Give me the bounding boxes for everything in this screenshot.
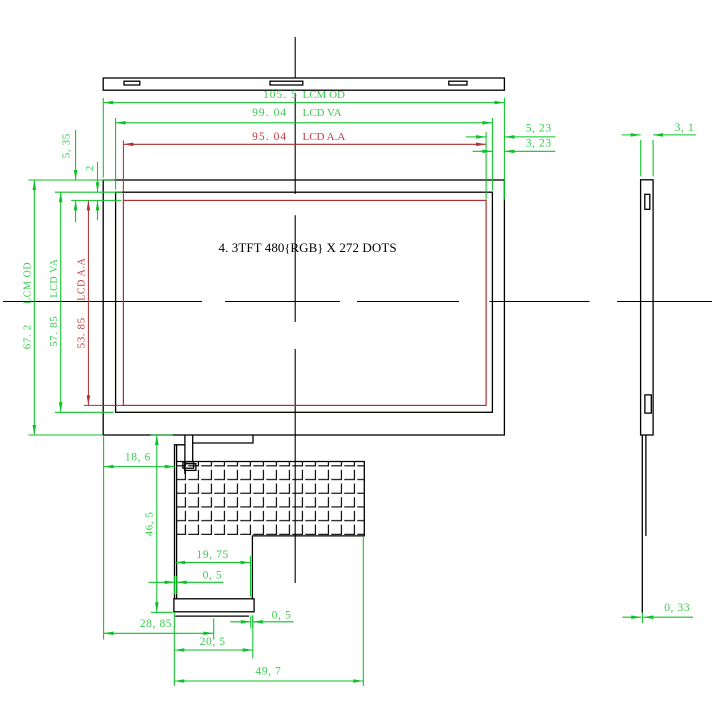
svg-text:28, 85: 28, 85 <box>140 618 172 630</box>
svg-text:18, 6: 18, 6 <box>125 452 151 464</box>
svg-text:4. 3TFT 480{RGB} X 272 DOTS: 4. 3TFT 480{RGB} X 272 DOTS <box>219 240 397 255</box>
svg-text:LCM OD: LCM OD <box>22 262 33 304</box>
svg-text:LCD VA: LCD VA <box>303 107 342 119</box>
svg-text:3, 23: 3, 23 <box>526 137 552 149</box>
svg-text:3, 1: 3, 1 <box>675 122 695 134</box>
svg-text:LCM OD: LCM OD <box>303 89 346 101</box>
svg-text:57. 85: 57. 85 <box>48 316 60 347</box>
svg-text:67. 2: 67. 2 <box>21 324 33 349</box>
svg-text:5, 35: 5, 35 <box>61 133 73 158</box>
svg-text:2: 2 <box>84 165 96 171</box>
svg-text:53. 85: 53. 85 <box>76 317 88 348</box>
svg-text:LCD VA: LCD VA <box>49 258 60 297</box>
svg-text:46, 5: 46, 5 <box>143 512 155 537</box>
svg-text:105. 5: 105. 5 <box>263 89 298 101</box>
svg-text:0, 5: 0, 5 <box>203 570 223 582</box>
svg-text:0, 5: 0, 5 <box>272 610 292 622</box>
svg-text:49, 7: 49, 7 <box>255 666 281 678</box>
svg-text:5, 23: 5, 23 <box>526 122 552 134</box>
svg-text:20, 5: 20, 5 <box>200 636 226 648</box>
svg-text:99. 04: 99. 04 <box>252 107 287 119</box>
svg-text:0, 33: 0, 33 <box>664 602 690 614</box>
svg-text:19, 75: 19, 75 <box>197 549 229 561</box>
svg-text:95. 04: 95. 04 <box>252 131 287 143</box>
svg-text:LCD A.A: LCD A.A <box>303 131 346 143</box>
svg-text:LCD A.A: LCD A.A <box>77 258 88 301</box>
